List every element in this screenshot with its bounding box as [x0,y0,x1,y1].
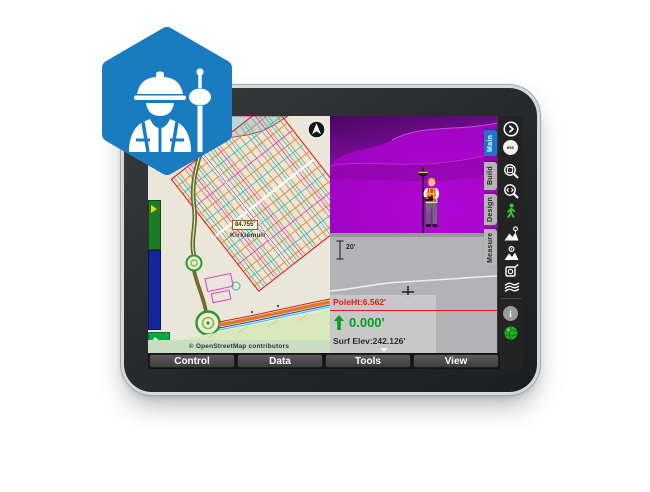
menu-tools-button[interactable]: Tools [325,354,411,368]
surface-inspect-button[interactable] [502,244,520,262]
page: 84.755' Kirklemuir © OpenStreetMap contr… [0,0,650,492]
stake-terrain-button[interactable] [502,225,520,243]
profile-view[interactable]: 20' PoleHt:6.562' 0.000' Surf Elev:242.1… [330,233,497,353]
surveyor-badge [96,22,238,180]
zoom-window-icon [503,163,520,180]
tab-main[interactable]: Main [484,130,497,156]
place-label: Kirklemuir [230,232,266,239]
menu-control-button[interactable]: Control [149,354,235,368]
surfaces-layers-button[interactable] [502,278,520,296]
left-panel-green[interactable] [148,200,161,250]
cutfill-value: 0.000' [349,315,385,330]
pole-height-line [330,310,497,311]
zoom-dynamic-button[interactable] [502,182,520,200]
view-3d[interactable] [330,116,497,233]
panel-collapse-caret[interactable] [380,348,388,352]
scale-label: 20' [346,244,355,251]
surface-inspect-icon [503,245,520,262]
level-instrument-icon [503,262,520,279]
north-arrow-icon[interactable] [307,120,326,139]
measurement-label: 84.755' [232,220,258,230]
surface-elevation-readout: Surf Elev:242.126' [333,336,405,346]
expand-arrow-icon [151,205,157,213]
side-toolbar: esc [497,116,523,369]
tab-measure[interactable]: Measure [484,229,497,266]
walk-navigation-icon [503,203,519,219]
info-button[interactable]: i [503,306,518,321]
gnss-status-button[interactable] [502,324,520,342]
terrain-3d-canvas [330,116,497,233]
zoom-window-button[interactable] [502,162,520,180]
zoom-dynamic-icon [503,183,520,200]
map-attribution: © OpenStreetMap contributors [148,340,330,353]
stake-terrain-icon [503,226,520,243]
scale-bracket-icon [336,239,344,261]
toolbar-divider [501,298,521,299]
mode-tabs: Main Build Design Measure [484,116,497,353]
menu-data-button[interactable]: Data [237,354,323,368]
expand-toolbar-button[interactable] [502,120,520,138]
pole-height-readout: PoleHt:6.562' [333,297,386,307]
menu-view-button[interactable]: View [413,354,499,368]
walk-navigation-button[interactable] [502,202,520,220]
level-instrument-button[interactable] [502,261,520,279]
up-arrow-icon [334,315,344,330]
tab-build[interactable]: Build [484,162,497,190]
tab-design[interactable]: Design [484,194,497,225]
left-panel-blue[interactable] [148,250,161,330]
scale-marker: 20' [336,239,355,261]
cutfill-readout: 0.000' [334,315,385,330]
expand-chevron-icon [503,121,519,137]
surfaces-layers-icon [503,279,520,296]
esc-button[interactable]: esc [503,140,518,155]
main-menu-bar: Control Data Tools View [148,353,500,369]
gnss-status-globe-icon [503,325,519,341]
